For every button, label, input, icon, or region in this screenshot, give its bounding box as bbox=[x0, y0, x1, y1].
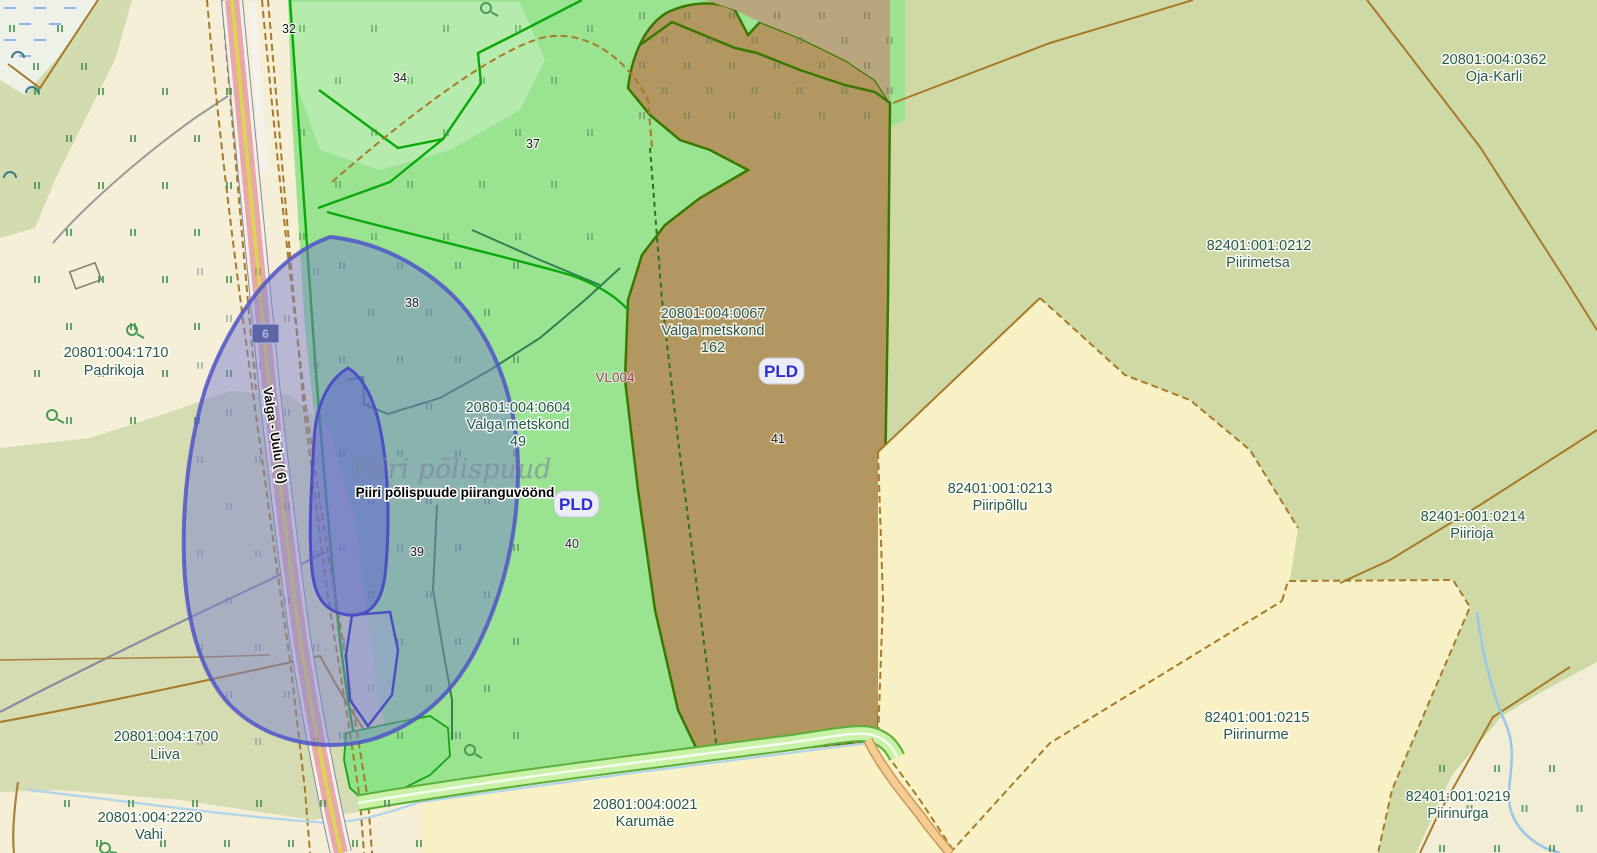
forest-parcel-brown bbox=[625, 3, 890, 765]
pld-badge-text: PLD bbox=[559, 495, 593, 514]
parcel-name: Valga metskond bbox=[662, 323, 765, 339]
parcel-code: 82401:001:0212 bbox=[1207, 238, 1312, 254]
compartment-number: 38 bbox=[405, 296, 419, 310]
parcel-code: 20801:004:0362 bbox=[1442, 52, 1547, 68]
protection-zone-label: Piiri põlispuude piiranguvöönd bbox=[356, 485, 555, 500]
parcel-code: 82401:001:0215 bbox=[1205, 710, 1310, 726]
compartment-number: 37 bbox=[526, 137, 540, 151]
register-code-label: VL004 bbox=[595, 370, 635, 385]
parcel-name: Karumäe bbox=[616, 814, 675, 830]
parcel-extra: 49 bbox=[510, 434, 526, 450]
parcel-code: 82401:001:0214 bbox=[1421, 509, 1526, 525]
pld-badge-2[interactable]: PLD bbox=[554, 491, 599, 517]
parcel-name: Vahi bbox=[135, 827, 163, 843]
parcel-code: 20801:004:2220 bbox=[98, 810, 203, 826]
compartment-number: 41 bbox=[771, 432, 785, 446]
parcel-code: 20801:004:0604 bbox=[466, 400, 571, 416]
pld-badge-text: PLD bbox=[764, 362, 798, 381]
compartment-number: 34 bbox=[393, 71, 407, 85]
protected-object-watermark: Piiri põlispuud bbox=[351, 454, 552, 485]
parcel-code: 82401:001:0219 bbox=[1406, 789, 1511, 805]
map-canvas[interactable]: 6 Piiri põlispuud Piiri põlispuude piira… bbox=[0, 0, 1597, 853]
cadastral-map[interactable]: 6 Piiri põlispuud Piiri põlispuude piira… bbox=[0, 0, 1597, 853]
parcel-name: Padrikoja bbox=[84, 363, 145, 379]
parcel-code: 20801:004:1700 bbox=[114, 729, 219, 745]
compartment-number: 40 bbox=[565, 537, 579, 551]
compartment-number: 32 bbox=[282, 22, 296, 36]
parcel-code: 20801:004:0021 bbox=[593, 797, 698, 813]
parcel-extra: 162 bbox=[701, 340, 725, 356]
parcel-name: Piirinurme bbox=[1223, 727, 1288, 743]
parcel-name: Piirioja bbox=[1450, 526, 1494, 542]
parcel-code: 20801:004:0067 bbox=[661, 306, 766, 322]
pld-badge-1[interactable]: PLD bbox=[759, 358, 804, 384]
parcel-code: 20801:004:1710 bbox=[64, 345, 169, 361]
parcel-name: Piirinurga bbox=[1427, 806, 1489, 822]
parcel-code: 82401:001:0213 bbox=[948, 481, 1053, 497]
parcel-name: Liiva bbox=[150, 747, 181, 763]
parcel-name: Valga metskond bbox=[467, 417, 570, 433]
parcel-name: Oja-Karli bbox=[1466, 69, 1522, 85]
parcel-name: Piiripõllu bbox=[973, 498, 1028, 514]
compartment-number: 39 bbox=[410, 545, 424, 559]
parcel-name: Piirimetsa bbox=[1226, 255, 1291, 271]
